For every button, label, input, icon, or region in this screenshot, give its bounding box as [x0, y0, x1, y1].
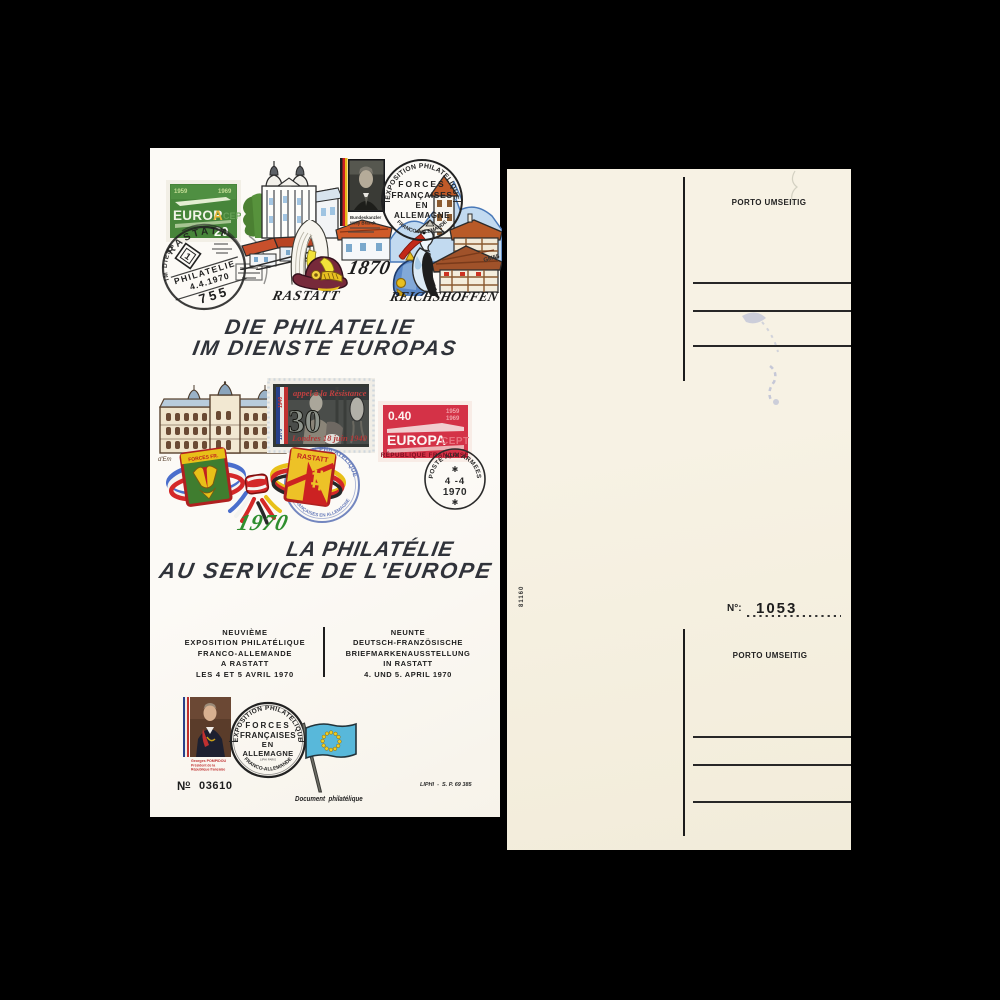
svg-text:appel à la Résistance: appel à la Résistance [293, 388, 367, 398]
svg-text:—: — [229, 736, 238, 746]
svg-text:Georges POMPIDOU: Georges POMPIDOU [191, 759, 227, 763]
svg-text:1969: 1969 [446, 416, 460, 422]
svg-text:FORCES: FORCES [245, 721, 290, 730]
svg-text:FRANÇAISES: FRANÇAISES [391, 190, 452, 200]
svg-text:République française: République française [191, 768, 225, 772]
svg-text:EN: EN [262, 740, 274, 749]
svg-text:1940: 1940 [278, 397, 284, 408]
svg-text:Willy Brandt: Willy Brandt [350, 221, 376, 226]
svg-text:1970: 1970 [443, 487, 467, 498]
svg-text:—: — [381, 196, 390, 206]
svg-text:30: 30 [288, 404, 321, 440]
svg-text:FRANCO-ALLEMANDE: FRANCO-ALLEMANDE [395, 219, 449, 235]
svg-text:4 -4: 4 -4 [445, 476, 465, 487]
svg-text:✱: ✱ [452, 465, 459, 474]
svg-text:1959: 1959 [446, 409, 460, 415]
svg-text:✱: ✱ [452, 498, 459, 507]
svg-text:1970: 1970 [278, 429, 284, 440]
svg-text:ALLEMAGNE: ALLEMAGNE [394, 211, 450, 220]
svg-text:IM DIENSTE EUROPAS: IM DIENSTE EUROPAS [152, 216, 176, 281]
svg-text:LIPHI PARIS: LIPHI PARIS [260, 758, 276, 762]
svg-text:FORCES: FORCES [398, 179, 445, 189]
svg-text:FRANÇAISES: FRANÇAISES [240, 731, 296, 740]
svg-text:EN: EN [415, 201, 428, 210]
svg-text:0.40: 0.40 [388, 409, 412, 423]
svg-text:1959: 1959 [174, 189, 188, 195]
svg-text:1969: 1969 [218, 189, 232, 195]
svg-text:—: — [453, 196, 462, 206]
svg-text:Bundeskanzler: Bundeskanzler [350, 215, 382, 220]
